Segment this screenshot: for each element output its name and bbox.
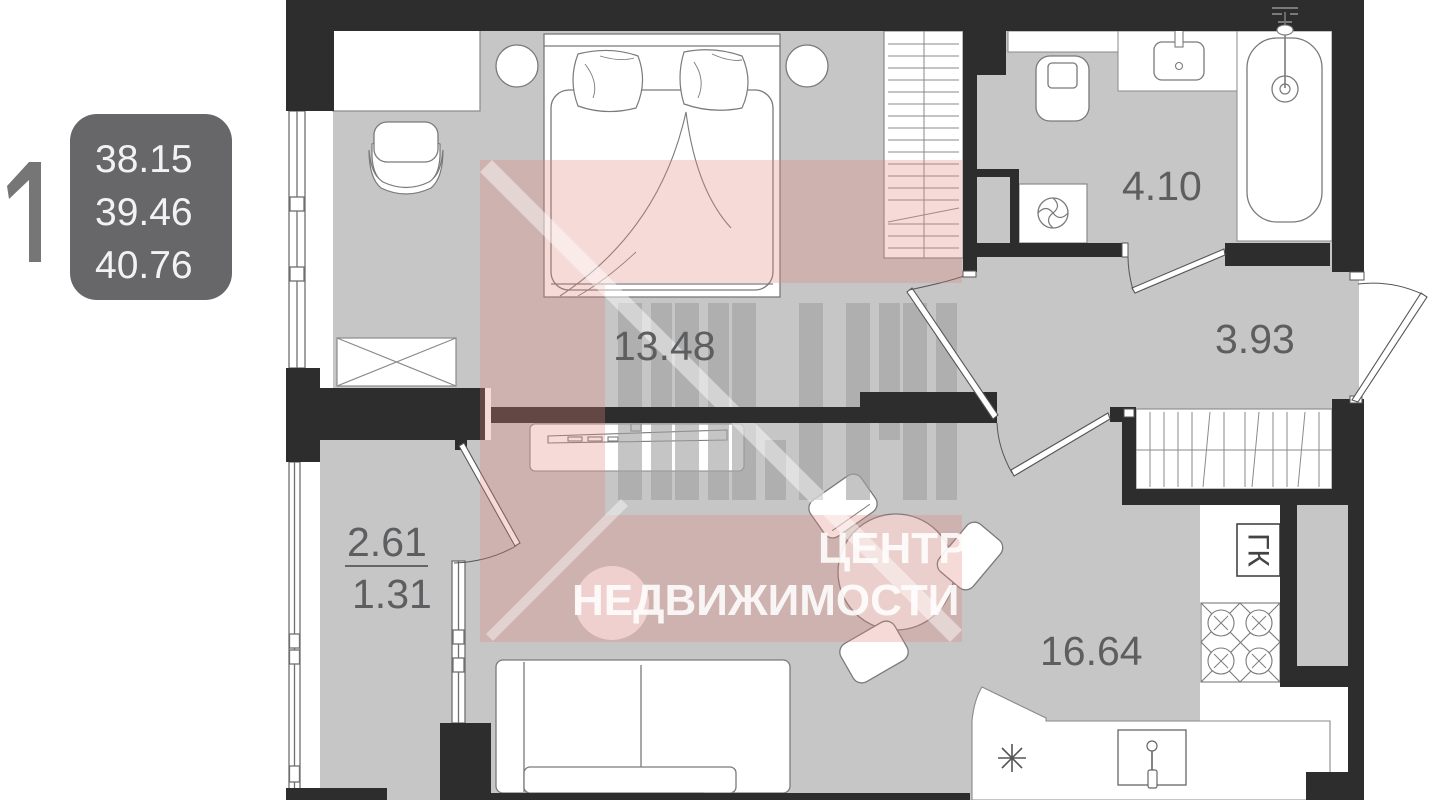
svg-text:ЦЕНТР: ЦЕНТР — [818, 524, 968, 573]
svg-text:40.76: 40.76 — [95, 244, 193, 287]
svg-text:2.61: 2.61 — [347, 519, 427, 565]
svg-text:38.15: 38.15 — [95, 138, 193, 181]
svg-text:3.93: 3.93 — [1215, 316, 1295, 362]
svg-text:4.10: 4.10 — [1122, 163, 1202, 209]
svg-text:16.64: 16.64 — [1040, 628, 1143, 674]
svg-text:13.48: 13.48 — [613, 323, 716, 369]
svg-text:1.31: 1.31 — [352, 571, 432, 617]
svg-text:НЕДВИЖИМОСТИ: НЕДВИЖИМОСТИ — [572, 576, 959, 625]
svg-text:ГК: ГК — [1242, 533, 1275, 567]
svg-text:39.46: 39.46 — [95, 191, 193, 234]
